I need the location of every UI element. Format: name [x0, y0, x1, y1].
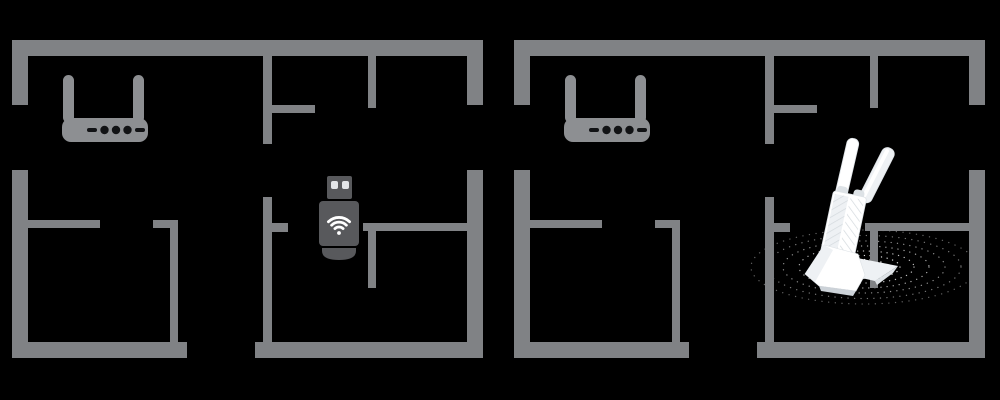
wifi-coverage-comparison — [0, 0, 1000, 400]
wall-interior-vertical-lower — [765, 197, 774, 342]
wall-room-left-horizontal-b — [153, 220, 178, 228]
wall-stub-hall-lower — [774, 223, 790, 232]
wifi-router-icon — [60, 72, 152, 144]
dongle-cap — [322, 248, 356, 260]
wall-right-lower — [467, 170, 483, 358]
wall-interior-vertical-lower — [263, 197, 272, 342]
wall-bottom-right — [757, 342, 985, 358]
router-antenna-right — [133, 75, 144, 123]
wall-bottom-left — [514, 342, 689, 358]
dongle-usb-hole-left — [331, 181, 338, 189]
wall-room-left-horizontal-b — [655, 220, 680, 228]
floorplan-before — [12, 40, 483, 358]
wall-top — [514, 40, 985, 56]
usb-wifi-dongle-icon — [317, 174, 361, 262]
wall-room-left-horizontal-a — [28, 220, 100, 228]
wall-stub-hall-lower — [272, 223, 288, 232]
wall-left-lower — [514, 170, 530, 358]
wifi-router-icon — [562, 72, 654, 144]
wall-right-lower — [969, 170, 985, 358]
wall-top — [12, 40, 483, 56]
wall-room-left-vertical — [170, 228, 178, 342]
wall-left-upper — [514, 56, 530, 105]
dual-antenna-usb-adapter-icon — [792, 133, 922, 301]
wall-room-left-vertical — [672, 228, 680, 342]
router-antenna-right — [635, 75, 646, 123]
wall-stub-hall-upper — [272, 105, 315, 113]
wall-room-right-horizontal — [363, 223, 467, 231]
floorplan-after — [514, 40, 985, 358]
wall-interior-top-divider — [870, 56, 878, 108]
wall-left-upper — [12, 56, 28, 105]
wall-right-upper — [969, 56, 985, 105]
wall-right-upper — [467, 56, 483, 105]
adapter-base — [805, 245, 898, 296]
router-antenna-left — [63, 75, 74, 123]
wall-interior-vertical-upper — [263, 56, 272, 144]
wall-room-left-horizontal-a — [530, 220, 602, 228]
wall-interior-top-divider — [368, 56, 376, 108]
dongle-usb-hole-right — [342, 181, 349, 189]
router-antenna-left — [565, 75, 576, 123]
wall-room-right-stub — [368, 231, 376, 288]
wall-bottom-right — [255, 342, 483, 358]
wall-interior-vertical-upper — [765, 56, 774, 144]
wall-stub-hall-upper — [774, 105, 817, 113]
wall-left-lower — [12, 170, 28, 358]
wall-bottom-left — [12, 342, 187, 358]
